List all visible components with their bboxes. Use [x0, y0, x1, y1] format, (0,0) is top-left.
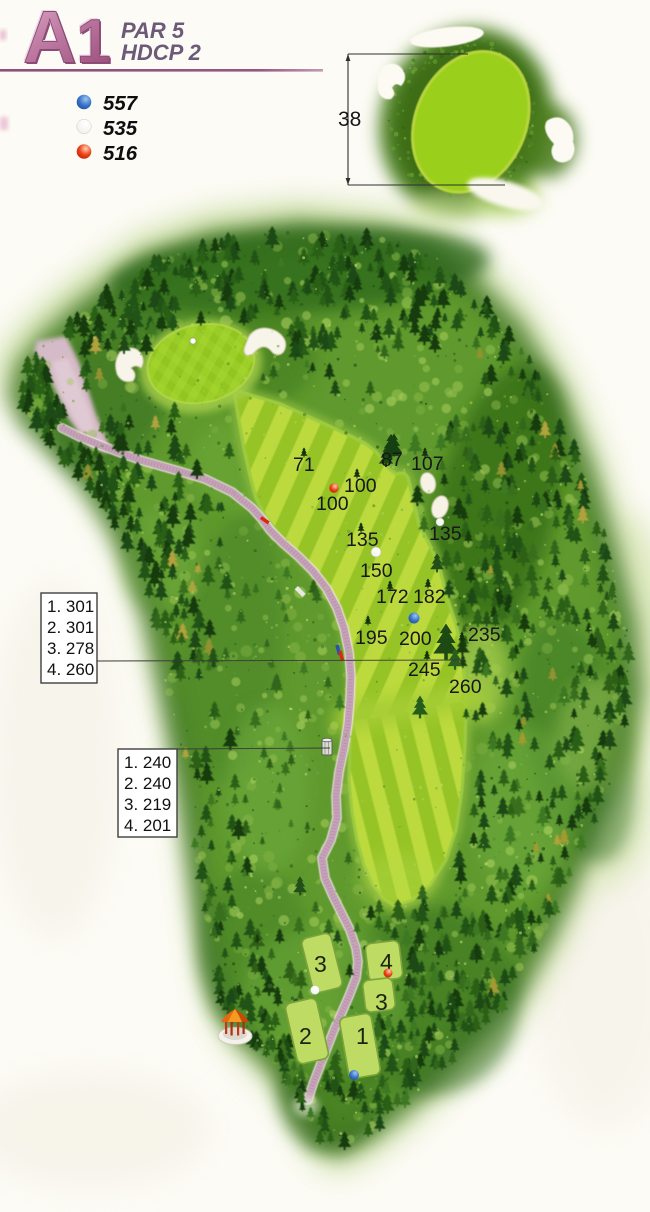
svg-text:107: 107	[411, 453, 444, 475]
svg-text:135: 135	[346, 529, 379, 551]
svg-text:200: 200	[399, 628, 432, 650]
svg-text:172: 172	[376, 586, 409, 608]
svg-text:3: 3	[314, 951, 327, 977]
svg-text:235: 235	[468, 624, 501, 646]
svg-text:2. 240: 2. 240	[124, 774, 171, 793]
svg-text:195: 195	[355, 627, 388, 649]
svg-text:71: 71	[293, 454, 315, 476]
svg-text:1. 301: 1. 301	[47, 597, 94, 616]
svg-text:2. 301: 2. 301	[47, 618, 94, 637]
svg-text:4. 260: 4. 260	[47, 660, 94, 679]
svg-text:245: 245	[408, 659, 441, 681]
svg-text:2: 2	[299, 1023, 312, 1049]
svg-text:87: 87	[381, 449, 403, 471]
svg-text:516: 516	[103, 142, 138, 165]
svg-text:135: 135	[429, 523, 462, 545]
svg-text:3. 219: 3. 219	[124, 795, 171, 814]
svg-text:100: 100	[344, 475, 377, 497]
svg-text:150: 150	[360, 560, 393, 582]
svg-text:182: 182	[413, 586, 446, 608]
svg-text:3. 278: 3. 278	[47, 639, 94, 658]
svg-text:557: 557	[103, 92, 139, 115]
svg-text:260: 260	[449, 676, 482, 698]
svg-text:HDCP 2: HDCP 2	[121, 40, 202, 65]
svg-text:38: 38	[338, 108, 361, 131]
svg-text:A1: A1	[23, 0, 111, 79]
svg-text:1: 1	[356, 1023, 369, 1049]
svg-text:3: 3	[375, 989, 388, 1015]
svg-text:535: 535	[103, 117, 138, 140]
svg-text:100: 100	[316, 493, 349, 515]
svg-text:1. 240: 1. 240	[124, 753, 171, 772]
svg-text:4. 201: 4. 201	[124, 816, 171, 835]
